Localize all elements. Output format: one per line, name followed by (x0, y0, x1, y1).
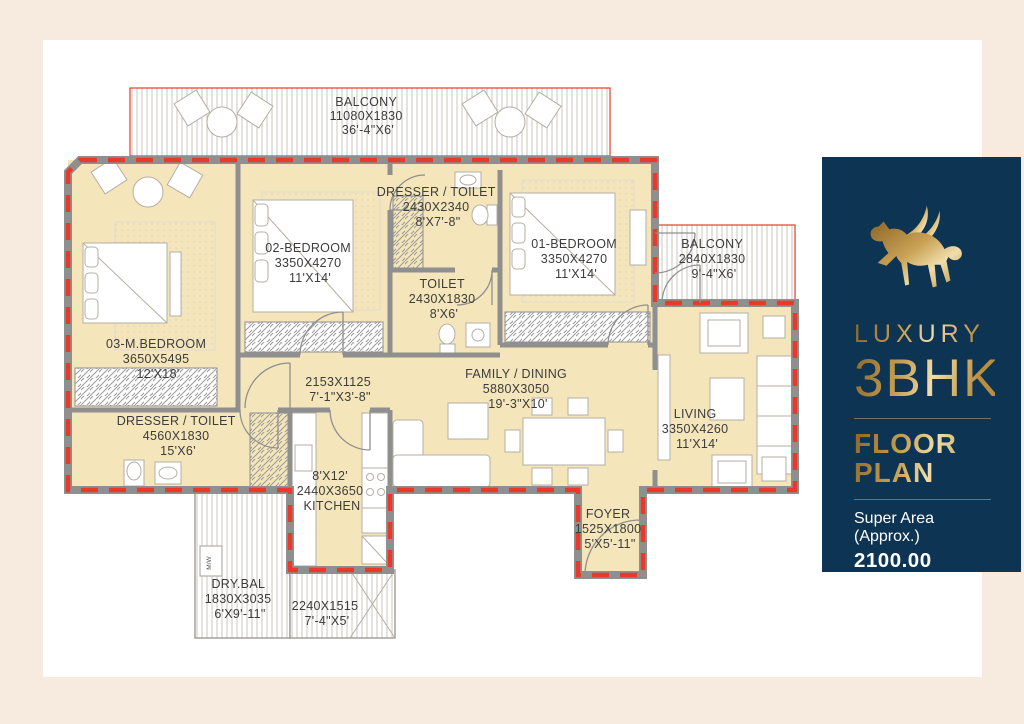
floor-plan-title: FLOOR PLAN (854, 429, 995, 487)
master-bedroom-furniture (83, 158, 215, 350)
panel-divider-bottom (854, 499, 991, 500)
super-area-label: Super Area (Approx.) (854, 510, 995, 546)
pegasus-logo-icon (856, 203, 974, 303)
super-area-value: 2100.00 SQ.FT. (854, 549, 995, 597)
dry-balcony-label: DRY.BAL 1830X3035 6'X9'-11" (205, 577, 275, 621)
passage-label: 2153X1125 7'-1"X3'-8" (305, 375, 375, 404)
bedroom1-wardrobe (505, 312, 650, 342)
washing-machine-label: M/W (206, 555, 213, 569)
brand-word: LUXURY (854, 321, 995, 349)
panel-divider-top (854, 418, 991, 419)
info-panel: LUXURY 3BHK FLOOR PLAN Super Area (Appro… (822, 157, 1021, 572)
bedroom2-wardrobe (245, 322, 383, 352)
unit-type: 3BHK (854, 351, 995, 407)
